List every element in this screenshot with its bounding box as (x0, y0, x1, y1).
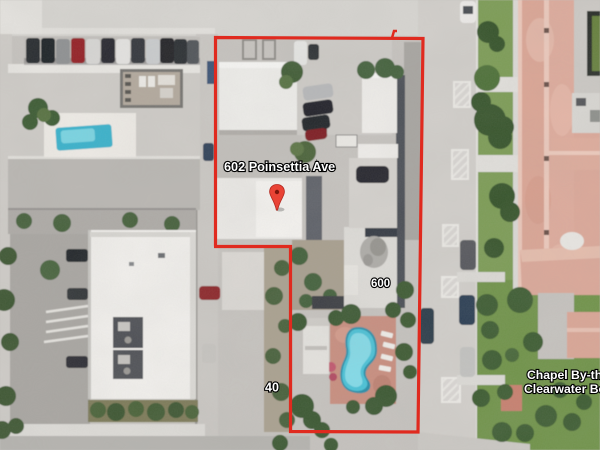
svg-text:Chapel By-the-: Chapel By-the- (527, 368, 600, 382)
svg-text:600: 600 (371, 278, 390, 290)
svg-text:602 Poinsettia Ave: 602 Poinsettia Ave (224, 160, 335, 174)
svg-text:Clearwater Bea: Clearwater Bea (524, 382, 600, 396)
svg-text:40: 40 (265, 381, 279, 395)
